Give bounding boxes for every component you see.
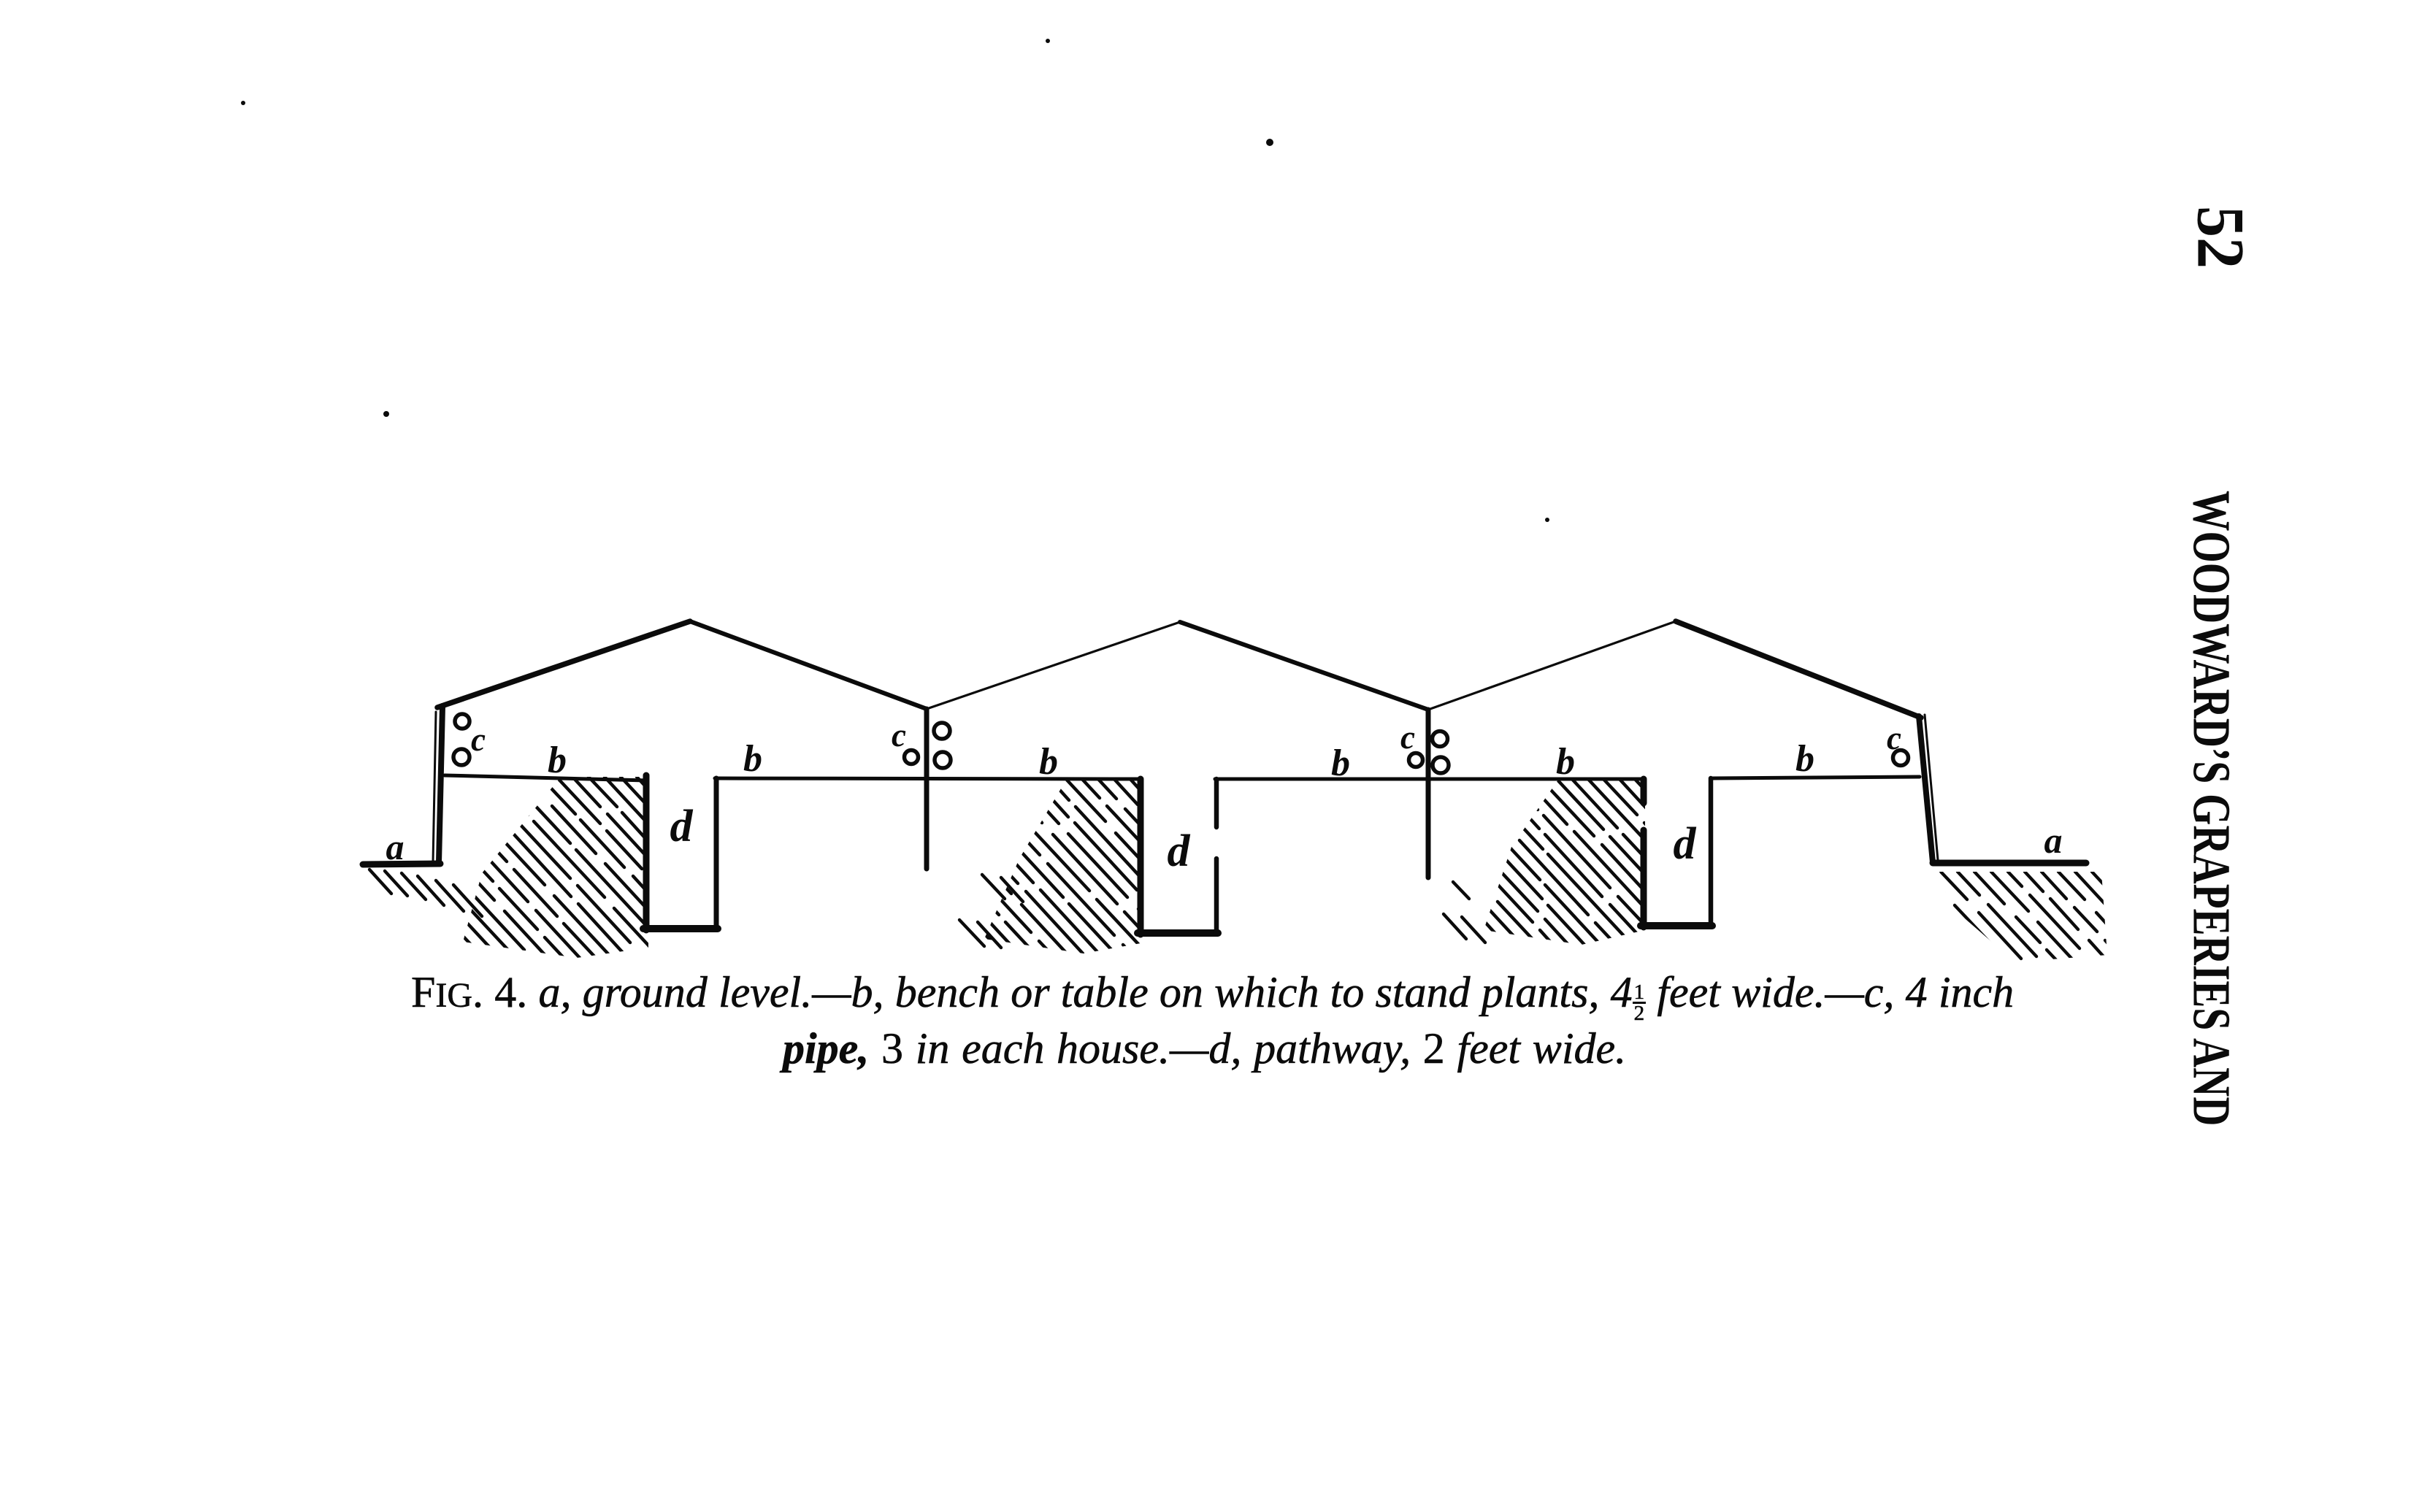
svg-text:d: d bbox=[670, 802, 694, 851]
svg-text:b: b bbox=[1795, 738, 1814, 780]
svg-text:c: c bbox=[1887, 720, 1901, 756]
svg-text:c: c bbox=[1400, 719, 1415, 756]
svg-text:a: a bbox=[386, 826, 405, 867]
svg-text:c: c bbox=[471, 721, 486, 758]
svg-text:d: d bbox=[1674, 819, 1697, 869]
svg-text:b: b bbox=[1556, 741, 1575, 783]
svg-text:b: b bbox=[1331, 742, 1350, 784]
svg-text:a: a bbox=[2044, 820, 2063, 861]
svg-text:b: b bbox=[548, 740, 567, 781]
svg-text:d: d bbox=[1168, 826, 1191, 876]
svg-text:b: b bbox=[1039, 741, 1058, 783]
svg-text:b: b bbox=[743, 738, 762, 780]
svg-text:c: c bbox=[892, 717, 906, 753]
